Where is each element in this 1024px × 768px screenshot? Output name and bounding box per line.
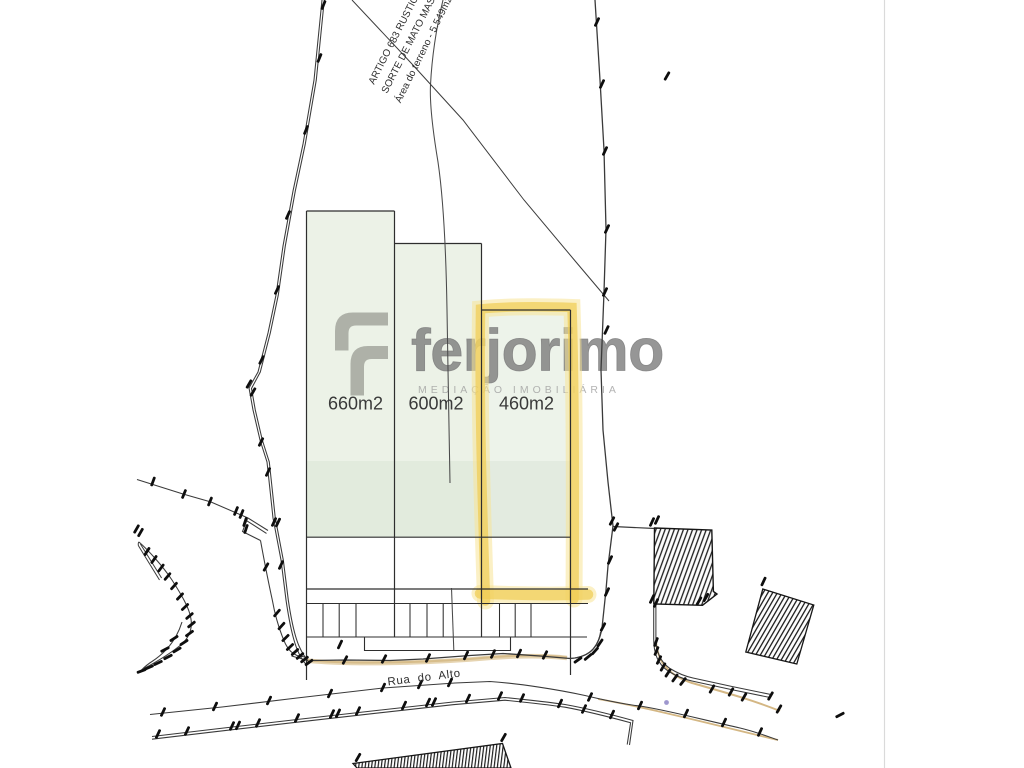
svg-text:ferjorimo: ferjorimo bbox=[411, 318, 664, 384]
svg-text:600m2: 600m2 bbox=[408, 394, 463, 414]
svg-text:660m2: 660m2 bbox=[328, 394, 383, 414]
svg-text:460m2: 460m2 bbox=[499, 394, 554, 414]
